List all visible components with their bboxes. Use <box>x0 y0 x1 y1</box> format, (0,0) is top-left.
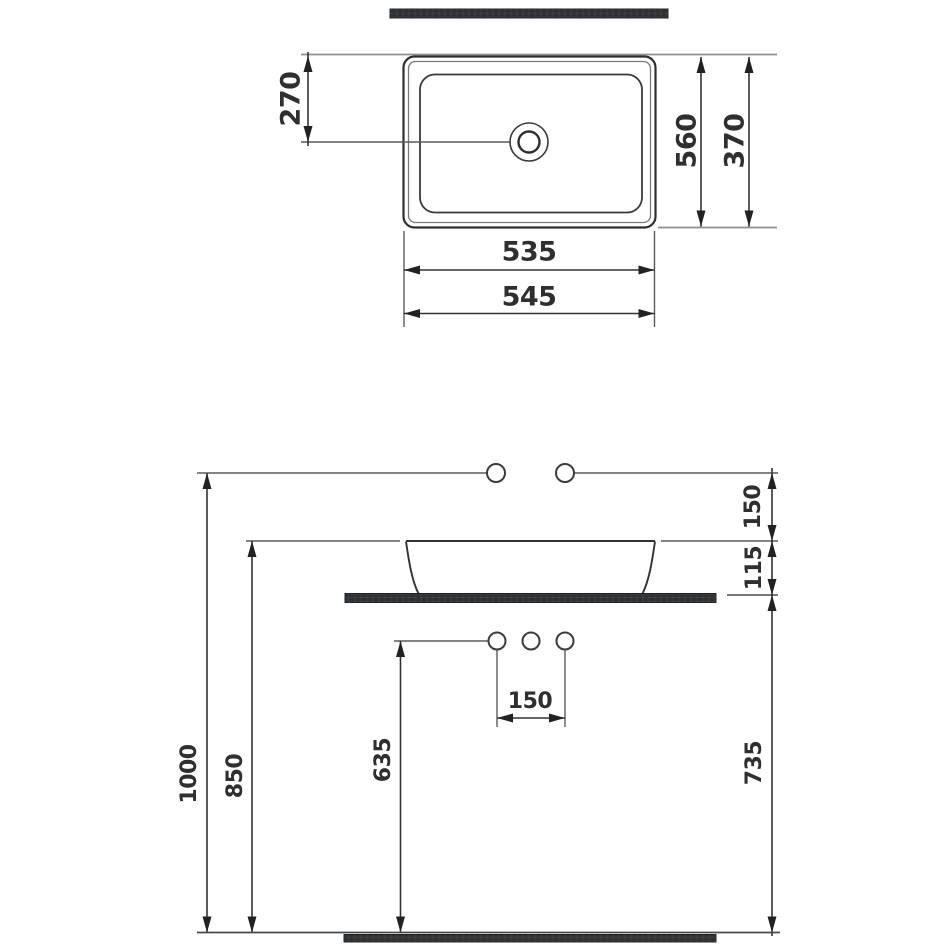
deck-faucet-hole-icon <box>489 633 506 650</box>
front-view <box>197 464 780 942</box>
dim-basin-height-label: 115 <box>744 546 766 590</box>
front-dim-rim-height <box>248 541 257 933</box>
dim-drain-offset-label: 270 <box>278 72 305 127</box>
dim-basin-width-label: 545 <box>502 284 557 311</box>
deck-faucet-hole-icon <box>523 633 540 650</box>
deck-faucet-hole-icon <box>557 633 574 650</box>
dim-inner-width-label: 535 <box>502 239 557 266</box>
wall-faucet-hole-icon <box>556 464 574 482</box>
dim-hole-line-height-label: 635 <box>373 738 395 782</box>
front-dim-faucet-line-height <box>203 473 212 933</box>
front-dim-hole-line-height <box>396 641 405 933</box>
front-dim-right-chain <box>768 468 777 936</box>
dim-cutout-depth-label: 560 <box>674 114 701 169</box>
drawing-linework <box>0 0 952 952</box>
basin-profile <box>406 541 655 594</box>
dim-counter-drop-label: 735 <box>744 741 766 785</box>
dim-faucet-line-height-label: 1000 <box>179 744 201 803</box>
dim-rim-height-label: 850 <box>225 754 247 798</box>
front-dim-hole-spacing <box>497 714 565 723</box>
drain-inner-circle-icon <box>519 132 540 153</box>
plan-view <box>301 9 777 327</box>
dim-basin-depth-label: 370 <box>722 114 749 169</box>
technical-drawing-canvas: 270 560 370 535 545 150 115 1000 850 635… <box>0 0 952 952</box>
plan-counter-edge-bar <box>390 9 668 18</box>
wall-faucet-hole-icon <box>487 464 505 482</box>
floor-slab <box>344 935 716 943</box>
dim-faucet-drop-label: 150 <box>743 485 765 529</box>
countertop-slab <box>345 594 716 603</box>
dim-hole-spacing-label: 150 <box>508 691 552 713</box>
